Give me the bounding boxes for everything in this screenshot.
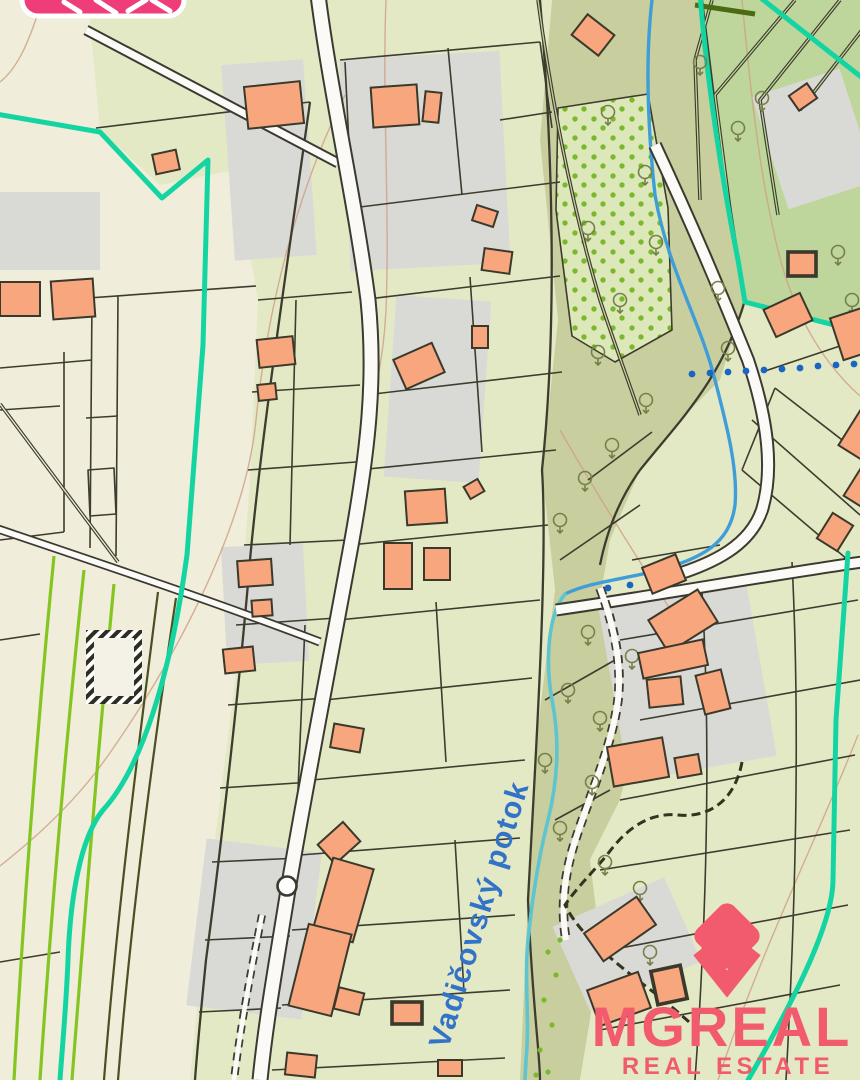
mgreal-tagline-text: REAL ESTATE: [622, 1053, 834, 1080]
road-circle-symbol: [278, 877, 297, 896]
top-left-logo: [22, 0, 184, 16]
mgreal-brand-text: MGREAL: [592, 995, 853, 1058]
hatched-building-symbol: [90, 634, 138, 700]
map-canvas[interactable]: Vadičovský potok MGREAL REAL ESTATE: [0, 0, 860, 1080]
cadastral-map-view[interactable]: Vadičovský potok MGREAL REAL ESTATE: [0, 0, 860, 1080]
